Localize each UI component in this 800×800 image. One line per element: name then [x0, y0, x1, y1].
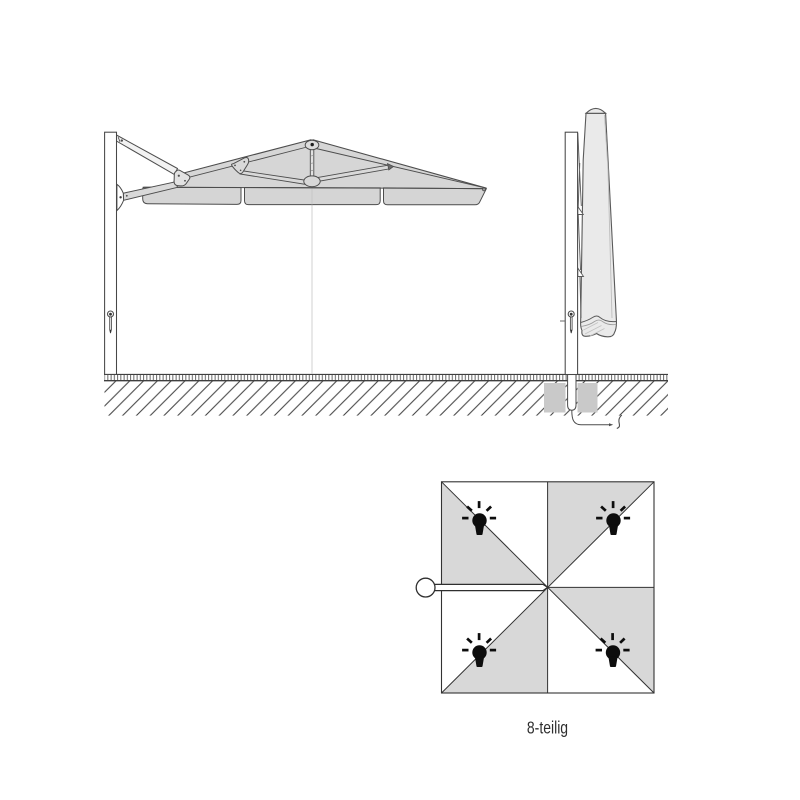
svg-text:8-teilig: 8-teilig	[527, 719, 568, 738]
